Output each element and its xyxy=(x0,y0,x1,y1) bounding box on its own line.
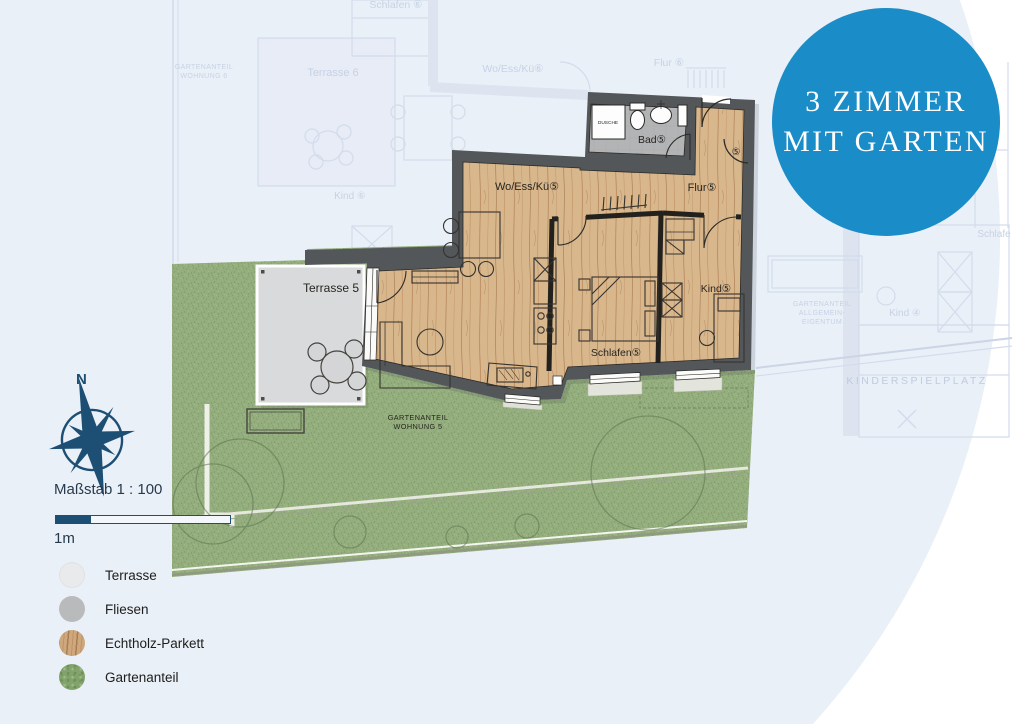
label-terrace6: Terrasse 6 xyxy=(307,67,358,79)
bath-sink xyxy=(651,107,672,124)
label-living: Wo/Ess/Kü⑤ xyxy=(495,181,559,193)
parquet-swatch-icon xyxy=(59,630,85,656)
label-hall6: Flur ⑥ xyxy=(654,57,684,69)
garden-swatch-icon xyxy=(59,664,85,690)
scale-bar-outline xyxy=(90,515,231,524)
legend-label: Echtholz-Parkett xyxy=(105,636,204,651)
terrace-area: Terrasse 5 xyxy=(257,266,368,408)
label-sleep: Schlafen⑤ xyxy=(591,347,641,359)
label-sleep6: Schlafen ⑥ xyxy=(369,0,422,11)
label-child4: Kind ④ xyxy=(889,308,921,319)
label-terrace5: Terrasse 5 xyxy=(303,281,359,295)
legend: Terrasse Fliesen Echtholz-Parkett Garten… xyxy=(59,562,204,698)
label-hall: Flur⑤ xyxy=(688,182,717,194)
label-common-1: GARTENANTEIL xyxy=(793,301,851,308)
label-shower: DUSCHE xyxy=(598,120,618,126)
legend-label: Terrasse xyxy=(105,568,157,583)
legend-label: Gartenanteil xyxy=(105,670,179,685)
legend-item-terrasse: Terrasse xyxy=(59,562,204,588)
label-garden6-1: GARTENANTEIL xyxy=(175,64,233,71)
headline-badge: 3 ZIMMER MIT GARTEN xyxy=(772,8,1000,236)
label-entry: ⑤ xyxy=(732,147,741,158)
legend-label: Fliesen xyxy=(105,602,149,617)
legend-item-parkett: Echtholz-Parkett xyxy=(59,630,204,656)
label-playground: KINDERSPIELPLATZ xyxy=(846,375,987,387)
scale-unit-label: 1m xyxy=(54,530,75,547)
label-sleep-partial: Schlafe xyxy=(977,229,1011,240)
legend-item-garten: Gartenanteil xyxy=(59,664,204,690)
label-garden-unit5-1: GARTENANTEIL xyxy=(388,413,449,422)
label-garden-unit5-2: WOHNUNG 5 xyxy=(393,422,442,431)
label-garden6-2: WOHNUNG 6 xyxy=(180,73,227,80)
scale-label: Maßstab 1 : 100 xyxy=(54,481,162,498)
terrace-swatch-icon xyxy=(59,562,85,588)
badge-line2: MIT GARTEN xyxy=(783,122,989,162)
compass-star-diagonal xyxy=(47,392,137,488)
badge-line1: 3 ZIMMER xyxy=(805,82,967,122)
legend-item-fliesen: Fliesen xyxy=(59,596,204,622)
compass-rose: N xyxy=(42,368,152,498)
label-living6: Wo/Ess/Kü⑥ xyxy=(482,63,543,75)
label-child6: Kind ⑥ xyxy=(334,191,366,202)
scale-bar-filled xyxy=(55,515,90,524)
floorplan-page: Schlafen ⑥ GARTENANTEIL WOHNUNG 6 Terras… xyxy=(0,0,1024,724)
label-bath: Bad⑤ xyxy=(638,134,666,146)
label-common-2: ALLGEMEIN- xyxy=(799,310,846,317)
label-child: Kind⑤ xyxy=(701,283,731,295)
tile-swatch-icon xyxy=(59,596,85,622)
toilet xyxy=(630,103,645,110)
label-common-3: EIGENTUM xyxy=(802,319,842,326)
